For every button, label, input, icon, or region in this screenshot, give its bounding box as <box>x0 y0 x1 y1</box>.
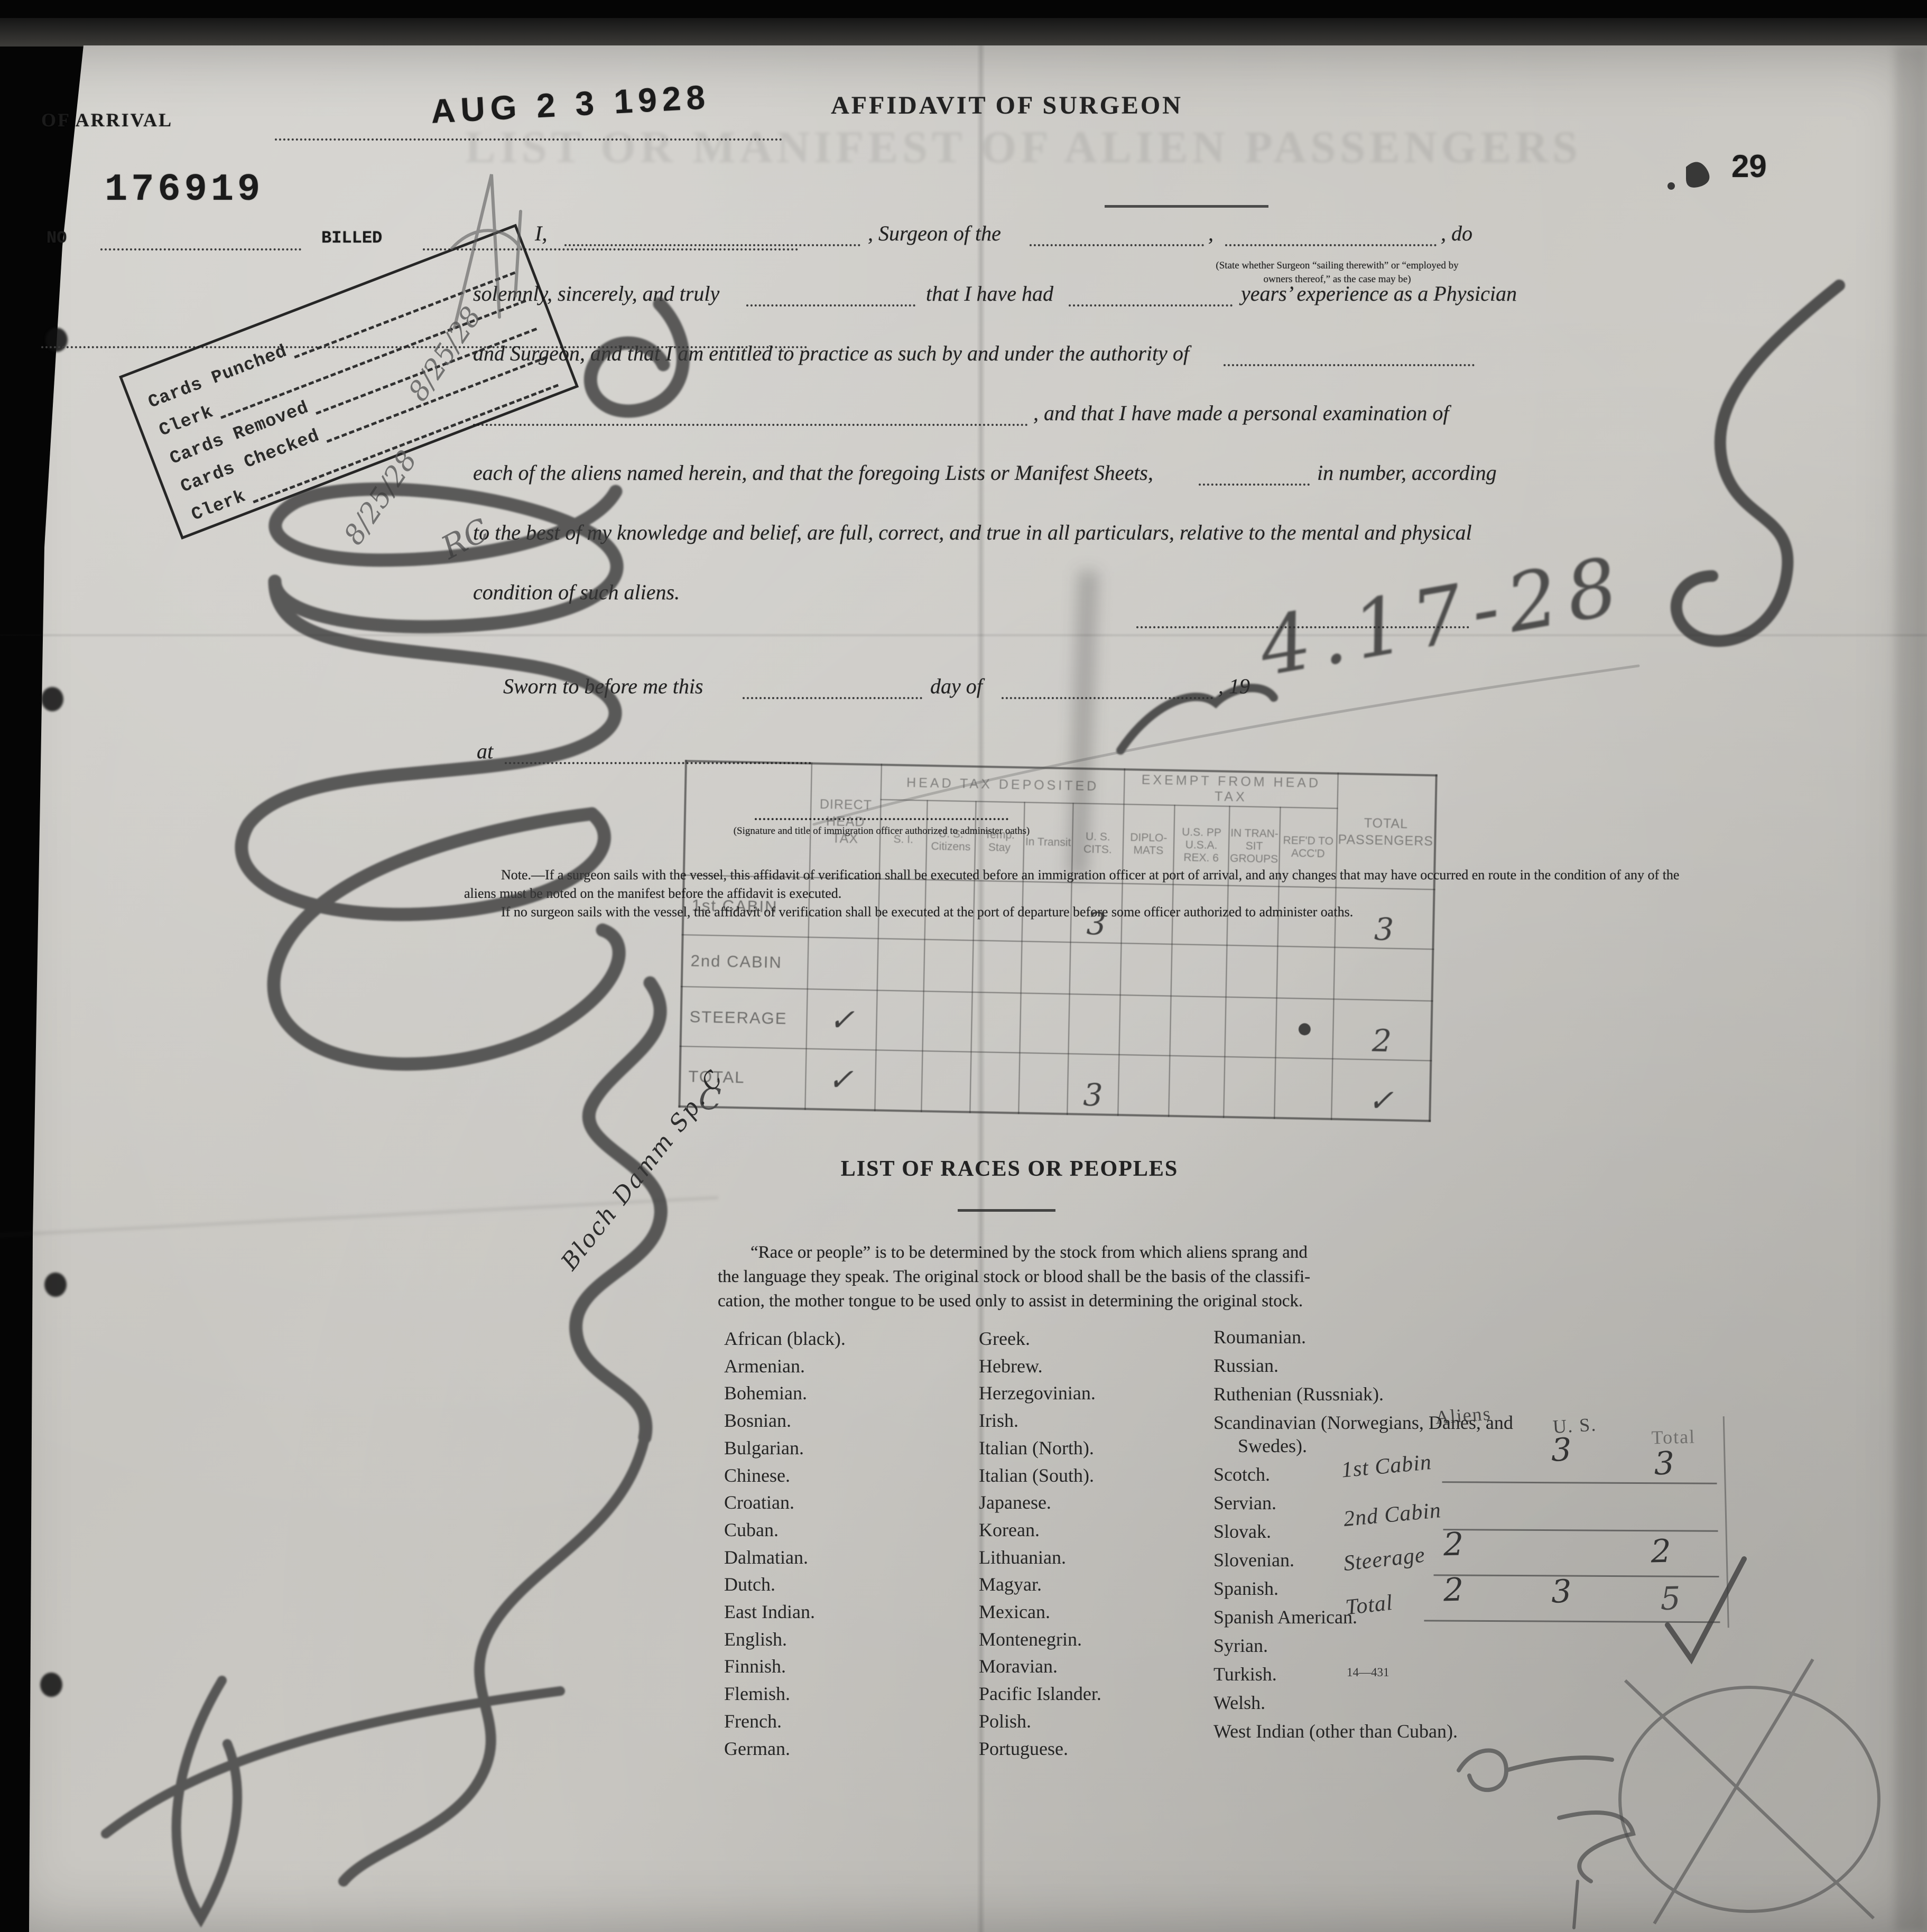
cell <box>876 990 924 1051</box>
cell <box>1274 1058 1332 1119</box>
affidavit-line1-surgeon-of: , Surgeon of the <box>868 221 1001 246</box>
tally-header-aliens: Aliens <box>1434 1402 1492 1428</box>
subcol-refd-accd: REF'D TO ACC'D <box>1279 807 1338 888</box>
blank-years <box>1069 304 1233 306</box>
blank-authority <box>1224 364 1475 366</box>
race-item: Moravian. <box>979 1653 1211 1680</box>
group-head-tax-deposited: HEAD TAX DEPOSITED <box>881 765 1125 804</box>
cell <box>1120 943 1172 996</box>
cell <box>1169 1056 1225 1117</box>
affidavit-line1-do: , do <box>1441 221 1472 246</box>
race-item: Korean. <box>979 1517 1211 1544</box>
race-item: Chinese. <box>724 1462 967 1490</box>
race-item: Dutch. <box>724 1571 967 1599</box>
head-tax-table-wrap: DIRECT HEAD TAX HEAD TAX DEPOSITED EXEMP… <box>678 760 1437 1122</box>
cell <box>1226 945 1278 998</box>
blank-employment-status <box>1225 244 1437 246</box>
punch-hole <box>40 1673 62 1697</box>
blank-surgeon-name <box>564 244 860 246</box>
sworn-label: Sworn to before me this <box>503 674 703 699</box>
cell <box>1277 946 1335 999</box>
race-item: Greek. <box>979 1325 1211 1353</box>
tally-line <box>1433 1574 1719 1577</box>
affidavit-line4: , and that I have made a personal examin… <box>1033 401 1449 425</box>
race-item: Croatian. <box>724 1489 967 1517</box>
no-label: NO <box>47 228 67 248</box>
cell <box>970 1052 1020 1113</box>
cell-handwritten-check: ✓ <box>805 1049 876 1111</box>
affidavit-line2b: that I have had <box>926 281 1053 306</box>
cell-total-check: ✓ <box>1331 1059 1431 1121</box>
cell <box>1118 1055 1170 1116</box>
scan-edge <box>0 18 1927 47</box>
tally-row-2nd-cabin: 2nd Cabin <box>1342 1498 1442 1532</box>
cell <box>925 880 975 941</box>
form-number: 14—431 <box>1347 1666 1389 1679</box>
race-item: East Indian. <box>724 1599 967 1626</box>
blank-sworn-day <box>743 697 922 699</box>
blank-authority-cont <box>473 424 1028 426</box>
sworn-19: , 19 <box>1218 674 1250 699</box>
tally-1st-cabin-total: 3 <box>1654 1445 1675 1482</box>
cell <box>1172 885 1228 945</box>
no-blank-line <box>100 248 301 250</box>
cell <box>1225 997 1276 1058</box>
row-1st-cabin: 1st CABIN <box>683 875 810 937</box>
page-number-stamp: 29 <box>1731 148 1767 184</box>
cell <box>878 879 926 940</box>
at-label: at <box>477 739 493 764</box>
race-item: Polish. <box>979 1708 1211 1735</box>
tally-line <box>1443 1529 1718 1532</box>
races-intro-line2: the language they speak. The original st… <box>718 1267 1310 1287</box>
punch-hole <box>41 687 63 711</box>
cell <box>875 1050 922 1111</box>
cell <box>971 992 1021 1053</box>
tally-total-aliens: 2 <box>1443 1571 1464 1609</box>
affidavit-line6: to the best of my knowledge and belief, … <box>473 520 1472 545</box>
subcol-us-citizens: U. S. Citizens <box>926 801 976 881</box>
cell <box>921 1051 971 1112</box>
race-item: Roumanian. <box>1213 1325 1552 1349</box>
race-item: Lithuanian. <box>979 1544 1211 1572</box>
col-total-passengers: TOTAL PASSENGERS <box>1336 774 1437 890</box>
cell <box>808 937 878 991</box>
tally-row-total: Total <box>1344 1590 1394 1621</box>
tally-total-us: 3 <box>1551 1573 1572 1611</box>
arrival-label: OF ARRIVAL <box>41 109 173 131</box>
punch-hole <box>45 328 68 352</box>
cell <box>924 940 974 992</box>
race-item: African (black). <box>724 1325 967 1353</box>
blank-swear-affirm <box>746 304 915 306</box>
race-item: Irish. <box>979 1407 1211 1435</box>
tally-box: Aliens U. S. Total 1st Cabin 3 3 2nd Cab… <box>1340 1395 1747 1641</box>
races-title: LIST OF RACES OR PEOPLES <box>756 1156 1263 1182</box>
race-item: English. <box>724 1626 967 1654</box>
cell <box>1021 941 1071 994</box>
cell <box>1227 886 1279 946</box>
race-item: Bohemian. <box>724 1380 967 1407</box>
race-item: Bulgarian. <box>724 1435 967 1462</box>
sworn-dayof: day of <box>930 674 983 699</box>
race-item: Finnish. <box>724 1653 967 1680</box>
cell <box>972 941 1022 993</box>
affidavit-line1-i: I, <box>535 221 547 246</box>
subcol-transit-groups: IN TRAN- SIT GROUPS <box>1228 806 1281 887</box>
race-item: Pacific Islander. <box>979 1680 1211 1708</box>
cell <box>1170 996 1226 1057</box>
short-rule <box>1105 205 1268 208</box>
tally-steerage-total: 2 <box>1651 1533 1672 1571</box>
race-item: Flemish. <box>724 1680 967 1708</box>
cell <box>923 991 972 1052</box>
group-exempt-head-tax: EXEMPT FROM HEAD TAX <box>1124 769 1338 809</box>
race-item: Russian. <box>1213 1354 1552 1377</box>
cell <box>1171 944 1227 997</box>
cell <box>1068 994 1120 1055</box>
blank-vessel-name <box>1030 244 1204 246</box>
race-item: Magyar. <box>979 1571 1211 1599</box>
races-column-2: Greek. Hebrew. Herzegovinian. Irish. Ita… <box>979 1325 1211 1762</box>
subcol-uspp: U.S. PP U.S.A. REX. 6 <box>1173 805 1230 886</box>
race-item: Portuguese. <box>979 1735 1211 1763</box>
paren-note-line1: (State whether Surgeon “sailing therewit… <box>1189 260 1485 272</box>
row-2nd-cabin: 2nd CABIN <box>682 935 809 989</box>
cell <box>1121 884 1173 944</box>
tally-steerage-aliens: 2 <box>1443 1526 1464 1563</box>
race-item: West Indian (other than Cuban). <box>1213 1720 1513 1743</box>
cell <box>1020 993 1069 1054</box>
serial-number-stamp: 176919 <box>105 168 264 211</box>
tally-right-rule <box>1723 1416 1729 1628</box>
race-item: Armenian. <box>724 1353 967 1380</box>
tally-total-total: 5 <box>1660 1580 1681 1618</box>
cell <box>1022 881 1072 942</box>
cell <box>974 881 1023 942</box>
row-steerage: STEERAGE <box>681 987 808 1049</box>
race-item: Mexican. <box>979 1599 1211 1626</box>
tally-line <box>1424 1620 1720 1623</box>
subcol-in-transit: In Transit <box>1023 802 1073 883</box>
race-item: Bosnian. <box>724 1407 967 1435</box>
cell <box>877 939 925 991</box>
billed-label: BILLED <box>321 228 382 248</box>
race-item: French. <box>724 1708 967 1735</box>
races-intro-line3: cation, the mother tongue to be used onl… <box>718 1292 1303 1311</box>
affidavit-line1-comma: , <box>1208 221 1213 246</box>
tally-row-1st-cabin: 1st Cabin <box>1340 1450 1433 1483</box>
cell-ink-dot: ● <box>1275 998 1333 1059</box>
affidavit-line3: and Surgeon, and that I am entitled to p… <box>473 341 1189 366</box>
punch-hole <box>44 1272 67 1297</box>
cell-handwritten-3: 3 <box>1067 1054 1119 1115</box>
subcol-diplomats: DIPLO- MATS <box>1123 804 1175 885</box>
cell-handwritten-3: 3 <box>1071 883 1123 943</box>
blank-sworn-month <box>1002 697 1213 699</box>
affidavit-line7: condition of such aliens. <box>473 580 680 605</box>
cell <box>1119 995 1171 1056</box>
race-item: Welsh. <box>1213 1691 1552 1714</box>
races-column-1: African (black). Armenian. Bohemian. Bos… <box>724 1325 967 1762</box>
cell <box>809 878 879 939</box>
col-direct-head-tax: DIRECT HEAD TAX <box>810 764 882 879</box>
corner-cell <box>684 761 812 878</box>
blank-sheet-count <box>1199 484 1310 486</box>
race-item: Hebrew. <box>979 1353 1211 1380</box>
cell <box>1277 887 1336 948</box>
affidavit-line5b: in number, according <box>1317 460 1497 485</box>
ghost-bleedthrough-text: LIST OR MANIFEST OF ALIEN PASSENGERS <box>465 120 1582 173</box>
race-item: Japanese. <box>979 1489 1211 1517</box>
races-intro-line1: “Race or people” is to be determined by … <box>751 1243 1308 1262</box>
cell <box>1224 1057 1275 1118</box>
race-item: Herzegovinian. <box>979 1380 1211 1407</box>
tally-row-steerage: Steerage <box>1342 1542 1426 1576</box>
race-item: Montenegrin. <box>979 1626 1211 1654</box>
tally-1st-cabin-us: 3 <box>1551 1432 1572 1469</box>
subcol-si: S. I. <box>879 800 928 880</box>
race-item: Italian (North). <box>979 1435 1211 1462</box>
races-title-rule <box>958 1209 1055 1212</box>
race-item: German. <box>724 1735 967 1763</box>
cell <box>1070 942 1122 995</box>
cell <box>1334 948 1433 1001</box>
affidavit-title: AFFIDAVIT OF SURGEON <box>729 91 1284 120</box>
subcol-us-cits: U. S. CITS. <box>1072 803 1124 884</box>
head-tax-table: DIRECT HEAD TAX HEAD TAX DEPOSITED EXEMP… <box>678 760 1437 1122</box>
cell-handwritten-check: ✓ <box>807 989 877 1051</box>
cell-total-2: 2 <box>1332 999 1432 1061</box>
subcol-temp-stay: Temp. Stay <box>975 802 1025 882</box>
race-item: Italian (South). <box>979 1462 1211 1490</box>
cell <box>1018 1053 1068 1114</box>
affidavit-line5a: each of the aliens named herein, and tha… <box>473 460 1153 485</box>
affidavit-line2c: years’ experience as a Physician <box>1241 281 1517 306</box>
cell-total-3: 3 <box>1335 888 1434 950</box>
race-item: Cuban. <box>724 1517 967 1544</box>
race-item: Dalmatian. <box>724 1544 967 1572</box>
tally-line <box>1442 1481 1717 1484</box>
scanned-document: LIST OR MANIFEST OF ALIEN PASSENGERS OF … <box>0 0 1927 1932</box>
arrival-blank-line <box>275 138 782 141</box>
